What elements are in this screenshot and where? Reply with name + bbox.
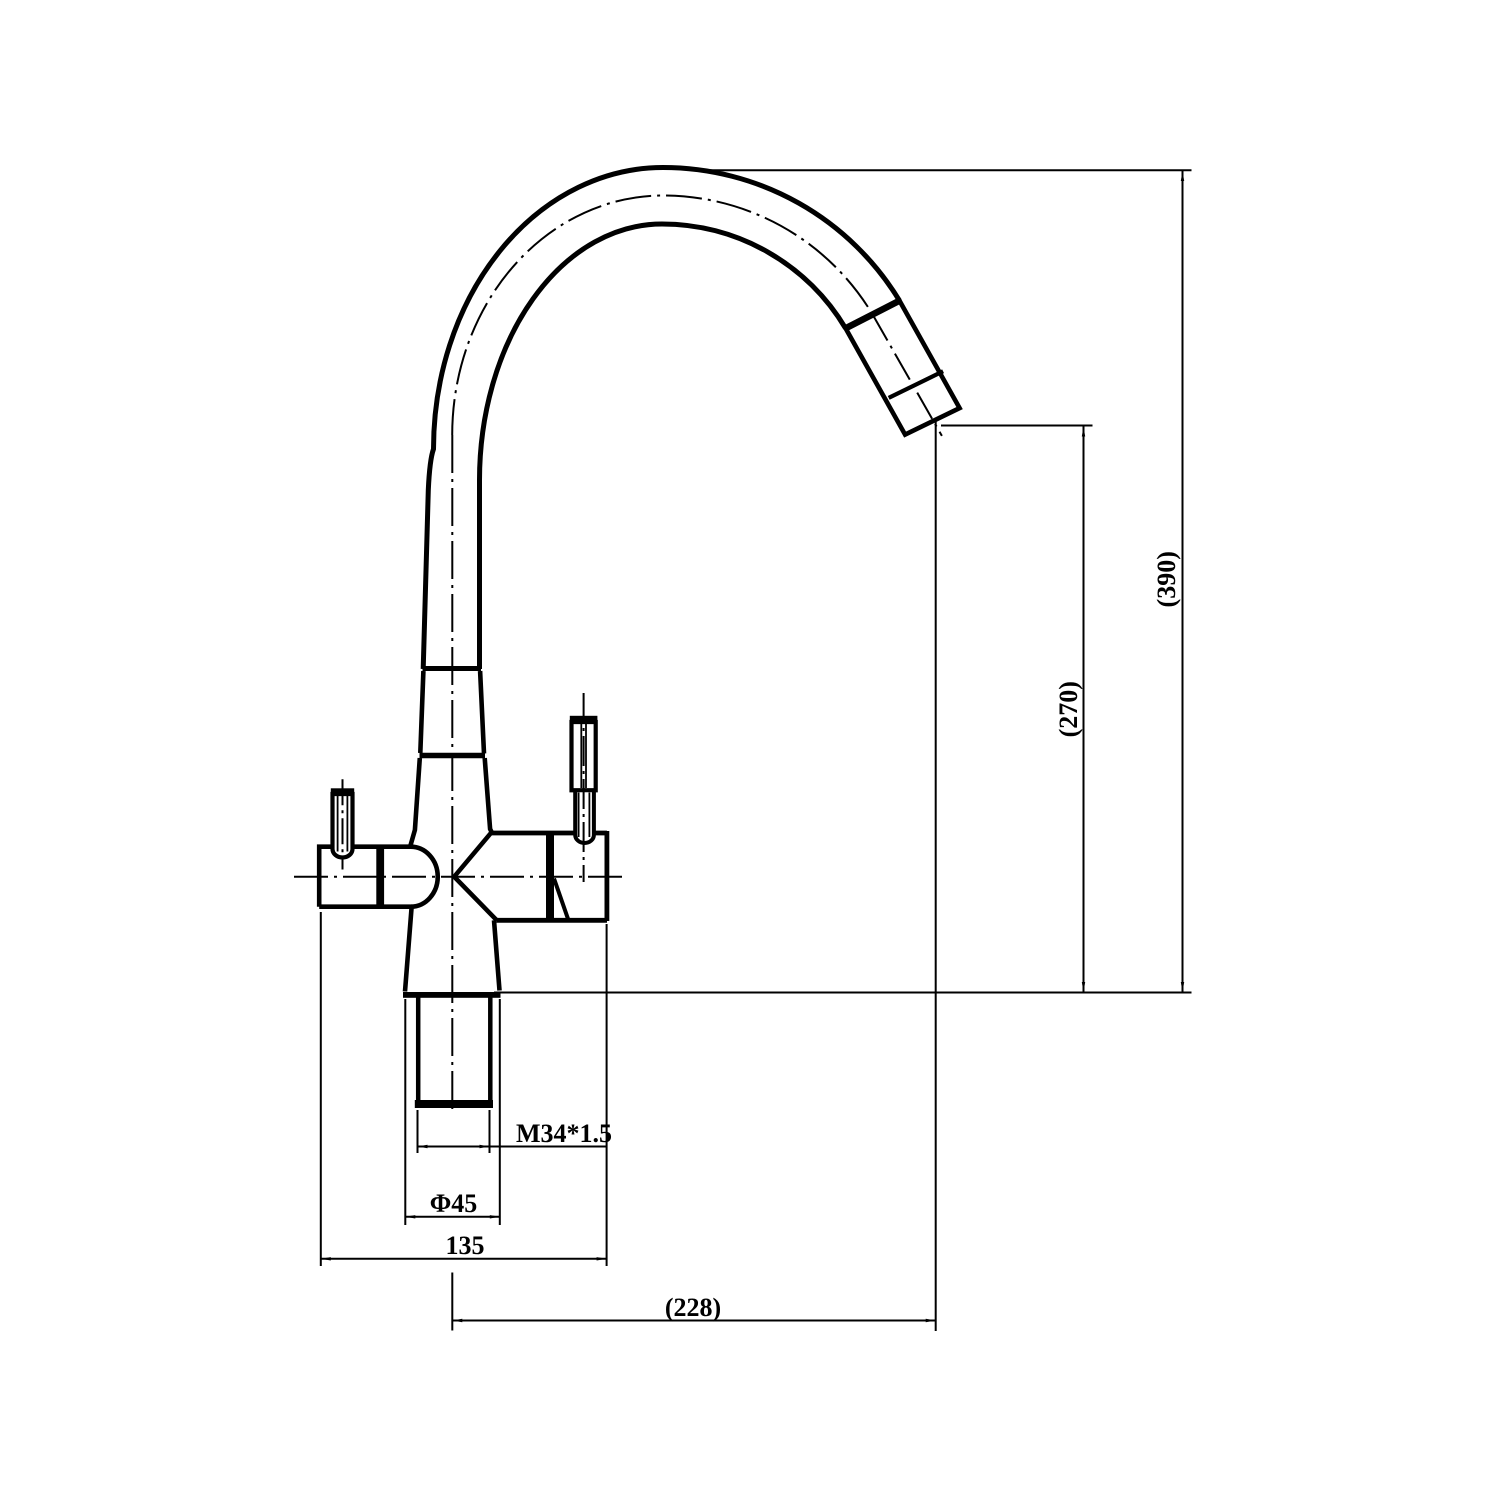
svg-text:M34*1.5: M34*1.5 xyxy=(516,1119,612,1148)
svg-text:135: 135 xyxy=(446,1231,485,1260)
svg-text:Φ45: Φ45 xyxy=(430,1189,478,1218)
svg-text:(228): (228) xyxy=(665,1293,721,1322)
svg-text:(390): (390) xyxy=(1152,551,1181,607)
svg-text:(270): (270) xyxy=(1054,681,1083,737)
